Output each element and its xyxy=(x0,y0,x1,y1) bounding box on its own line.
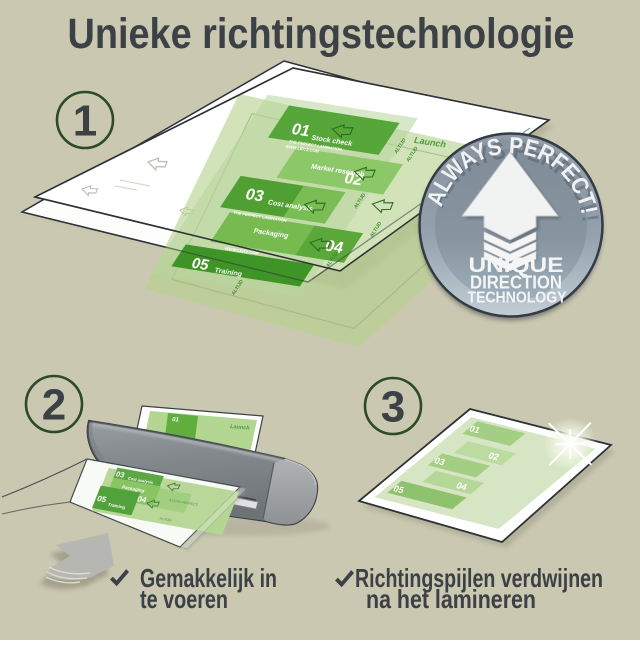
svg-text:Unieke richtingstechnologie: Unieke richtingstechnologie xyxy=(68,10,575,58)
svg-text:02: 02 xyxy=(343,170,363,190)
svg-text:te voeren: te voeren xyxy=(140,584,228,614)
svg-text:TECHNOLOGY: TECHNOLOGY xyxy=(468,290,568,307)
svg-text:1: 1 xyxy=(73,97,97,146)
svg-text:03: 03 xyxy=(244,186,264,206)
svg-text:3: 3 xyxy=(381,383,405,432)
svg-text:na het lamineren: na het lamineren xyxy=(366,584,536,614)
svg-text:01: 01 xyxy=(172,417,180,424)
svg-text:01: 01 xyxy=(291,121,311,141)
svg-text:2: 2 xyxy=(42,381,66,430)
